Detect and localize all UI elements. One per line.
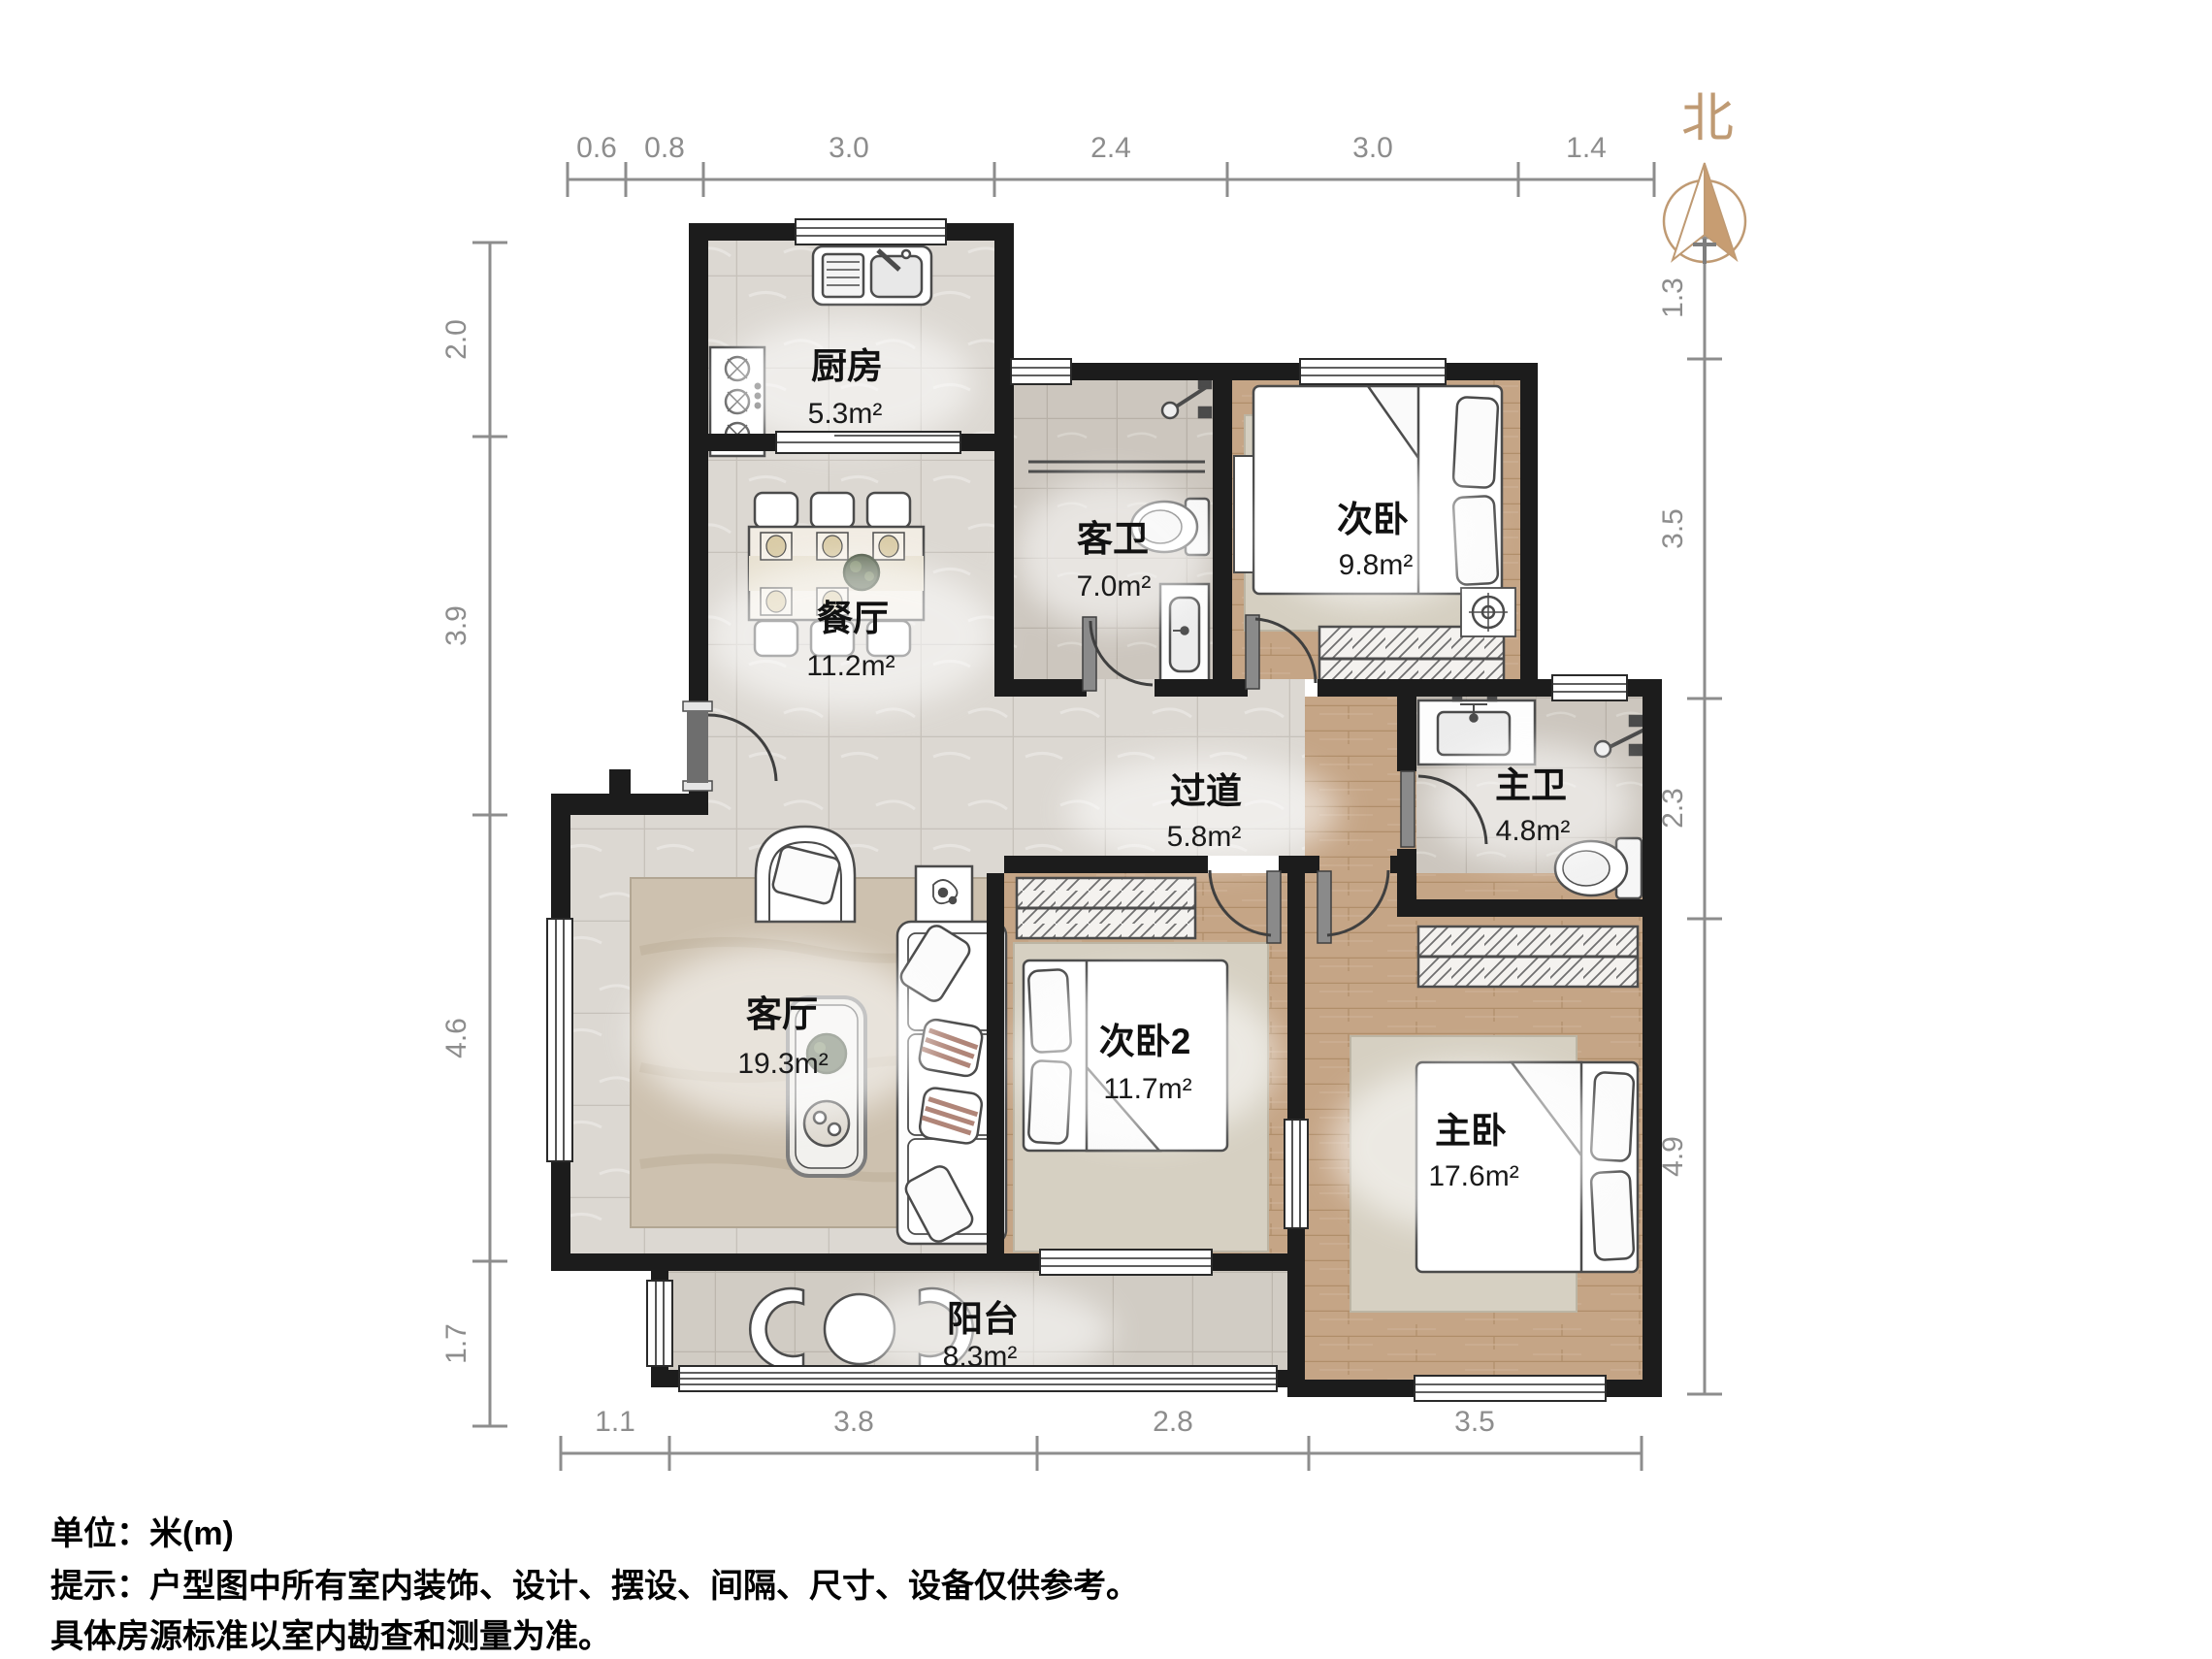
room-label-master-bed: 主卧 (1435, 1111, 1507, 1151)
room-area-hallway: 5.8m² (1167, 821, 1242, 853)
dim-left-2: 4.6 (440, 1018, 472, 1058)
room-label-living: 客厅 (746, 994, 818, 1034)
floor-drain-icon (1461, 588, 1515, 636)
room-label-balcony: 阳台 (947, 1299, 1019, 1339)
unit-note: 单位：米(m) (50, 1515, 234, 1552)
master-bath-window (1552, 675, 1627, 700)
dim-top-2: 3.0 (829, 132, 869, 164)
dim-bottom-2: 2.8 (1153, 1406, 1193, 1438)
dining-chair (755, 493, 797, 528)
side-table-plant (916, 866, 972, 923)
guest-bath-window (1011, 359, 1071, 384)
room-area-kitchen: 5.3m² (808, 398, 883, 430)
room-label-kitchen: 厨房 (811, 346, 883, 386)
floorplan-page: 厨房 5.3m² 餐厅 11.2m² 客卫 7.0m² 次卧 9.8m² 过道 … (0, 0, 2212, 1659)
room-label-master-bath: 主卫 (1495, 765, 1567, 805)
dim-top-0: 0.6 (576, 132, 617, 164)
bedroom3-window (1040, 1250, 1212, 1275)
room-area-master-bed: 17.6m² (1428, 1160, 1518, 1192)
room-label-guest-bath: 客卫 (1077, 519, 1149, 559)
dim-left-line (472, 243, 507, 1426)
room-area-balcony: 8.3m² (943, 1341, 1018, 1373)
notes: 单位：米(m) 提示：户型图中所有室内装饰、设计、摆设、间隔、尺寸、设备仅供参考… (50, 1515, 1139, 1655)
bedroom2-window (1300, 359, 1446, 384)
master-bed-bottom-window (1415, 1376, 1606, 1401)
room-label-bedroom2: 次卧 (1337, 500, 1409, 539)
kitchen-sink-icon (813, 246, 931, 305)
dining-chair (867, 493, 910, 528)
room-area-guest-bath: 7.0m² (1077, 570, 1152, 602)
disclaimer-line2: 具体房源标准以室内勘查和测量为准。 (50, 1617, 611, 1655)
dim-top-3: 2.4 (1090, 132, 1131, 164)
dim-top-5: 1.4 (1566, 132, 1607, 164)
room-area-living: 19.3m² (737, 1048, 828, 1080)
room-area-bedroom3: 11.7m² (1103, 1073, 1191, 1105)
dim-bottom-3: 3.5 (1454, 1406, 1495, 1438)
dim-right-0: 1.3 (1657, 277, 1689, 318)
kitchen-window (796, 219, 946, 244)
dim-right-2: 2.3 (1657, 788, 1689, 829)
room-area-dining: 11.2m² (806, 650, 895, 682)
disclaimer-line1: 提示：户型图中所有室内装饰、设计、摆设、间隔、尺寸、设备仅供参考。 (50, 1567, 1139, 1605)
north-label: 北 (1681, 89, 1734, 147)
dim-bottom-1: 3.8 (833, 1406, 874, 1438)
floorplan-canvas: 厨房 5.3m² 餐厅 11.2m² 客卫 7.0m² 次卧 9.8m² 过道 … (0, 0, 2212, 1659)
dim-top-1: 0.8 (644, 132, 685, 164)
room-label-dining: 餐厅 (817, 599, 889, 638)
dim-right-3: 4.9 (1657, 1136, 1689, 1177)
room-label-bedroom3: 次卧2 (1099, 1022, 1191, 1061)
bedroom2-door-panel (1234, 456, 1253, 572)
dim-top-4: 3.0 (1352, 132, 1393, 164)
room-area-bedroom2: 9.8m² (1339, 549, 1414, 581)
dim-bottom-0: 1.1 (595, 1406, 635, 1438)
dim-left-0: 2.0 (440, 319, 472, 360)
dim-bottom-line (561, 1436, 1642, 1471)
dim-left-1: 3.9 (440, 605, 472, 646)
room-area-master-bath: 4.8m² (1496, 815, 1571, 847)
living-window (547, 919, 572, 1161)
master-bed-side-window (1285, 1120, 1308, 1228)
dim-right-1: 3.5 (1657, 508, 1689, 549)
room-label-hallway: 过道 (1170, 771, 1242, 811)
dim-top-line (568, 162, 1654, 197)
kitchen-passthrough-window (776, 432, 960, 453)
pillow-icon (1453, 397, 1499, 488)
dining-chair (811, 493, 854, 528)
dim-left-3: 1.7 (440, 1323, 472, 1364)
balcony-side-window (647, 1281, 672, 1366)
dim-right-line (1687, 238, 1722, 1394)
ottoman (919, 1087, 984, 1145)
